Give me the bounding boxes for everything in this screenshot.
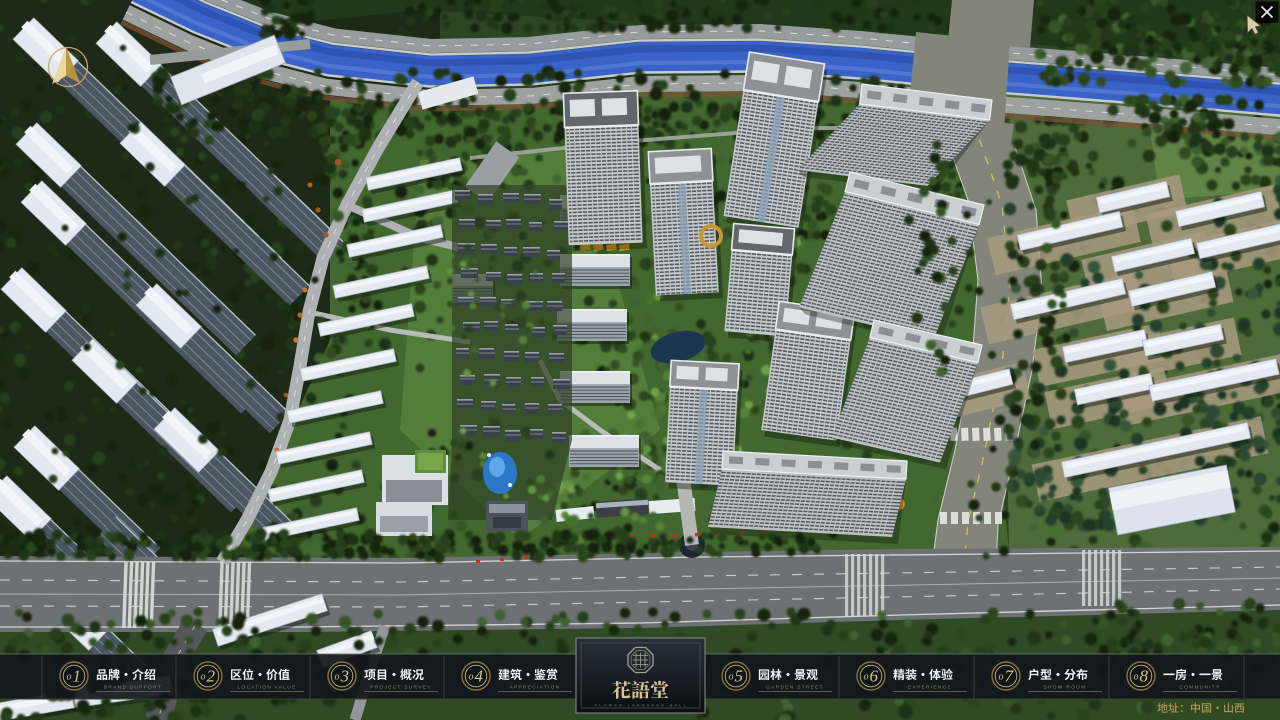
svg-text:3: 3 xyxy=(340,667,350,686)
svg-text:o: o xyxy=(864,672,869,683)
svg-text:o: o xyxy=(469,672,474,683)
svg-text:SHOW ROOM: SHOW ROOM xyxy=(1044,684,1087,690)
svg-text:2: 2 xyxy=(207,667,216,686)
svg-text:8: 8 xyxy=(1140,667,1149,686)
svg-text:EXPERIENCE: EXPERIENCE xyxy=(908,684,952,690)
svg-text:PROJECT SURVEY: PROJECT SURVEY xyxy=(370,684,431,690)
svg-text:o: o xyxy=(335,672,340,683)
svg-text:1: 1 xyxy=(73,667,82,686)
svg-text:o: o xyxy=(201,672,206,683)
svg-text:APPRECIATION: APPRECIATION xyxy=(510,684,561,690)
svg-text:COMMUNITY: COMMUNITY xyxy=(1179,684,1220,690)
svg-text:4: 4 xyxy=(475,667,484,686)
svg-text:o: o xyxy=(999,672,1004,683)
svg-text:6: 6 xyxy=(870,667,879,686)
svg-text:o: o xyxy=(1134,672,1139,683)
svg-text:BRAND SUPPORT: BRAND SUPPORT xyxy=(104,684,162,690)
svg-text:GARDEN STREET: GARDEN STREET xyxy=(766,684,824,690)
svg-text:LOCATION VALUE: LOCATION VALUE xyxy=(237,684,296,690)
svg-text:5: 5 xyxy=(735,667,744,686)
svg-text:F L O W E R - L A N G U A G E: F L O W E R - L A N G U A G E - H A L L xyxy=(595,704,687,708)
svg-text:o: o xyxy=(67,672,72,683)
svg-text:o: o xyxy=(729,672,734,683)
